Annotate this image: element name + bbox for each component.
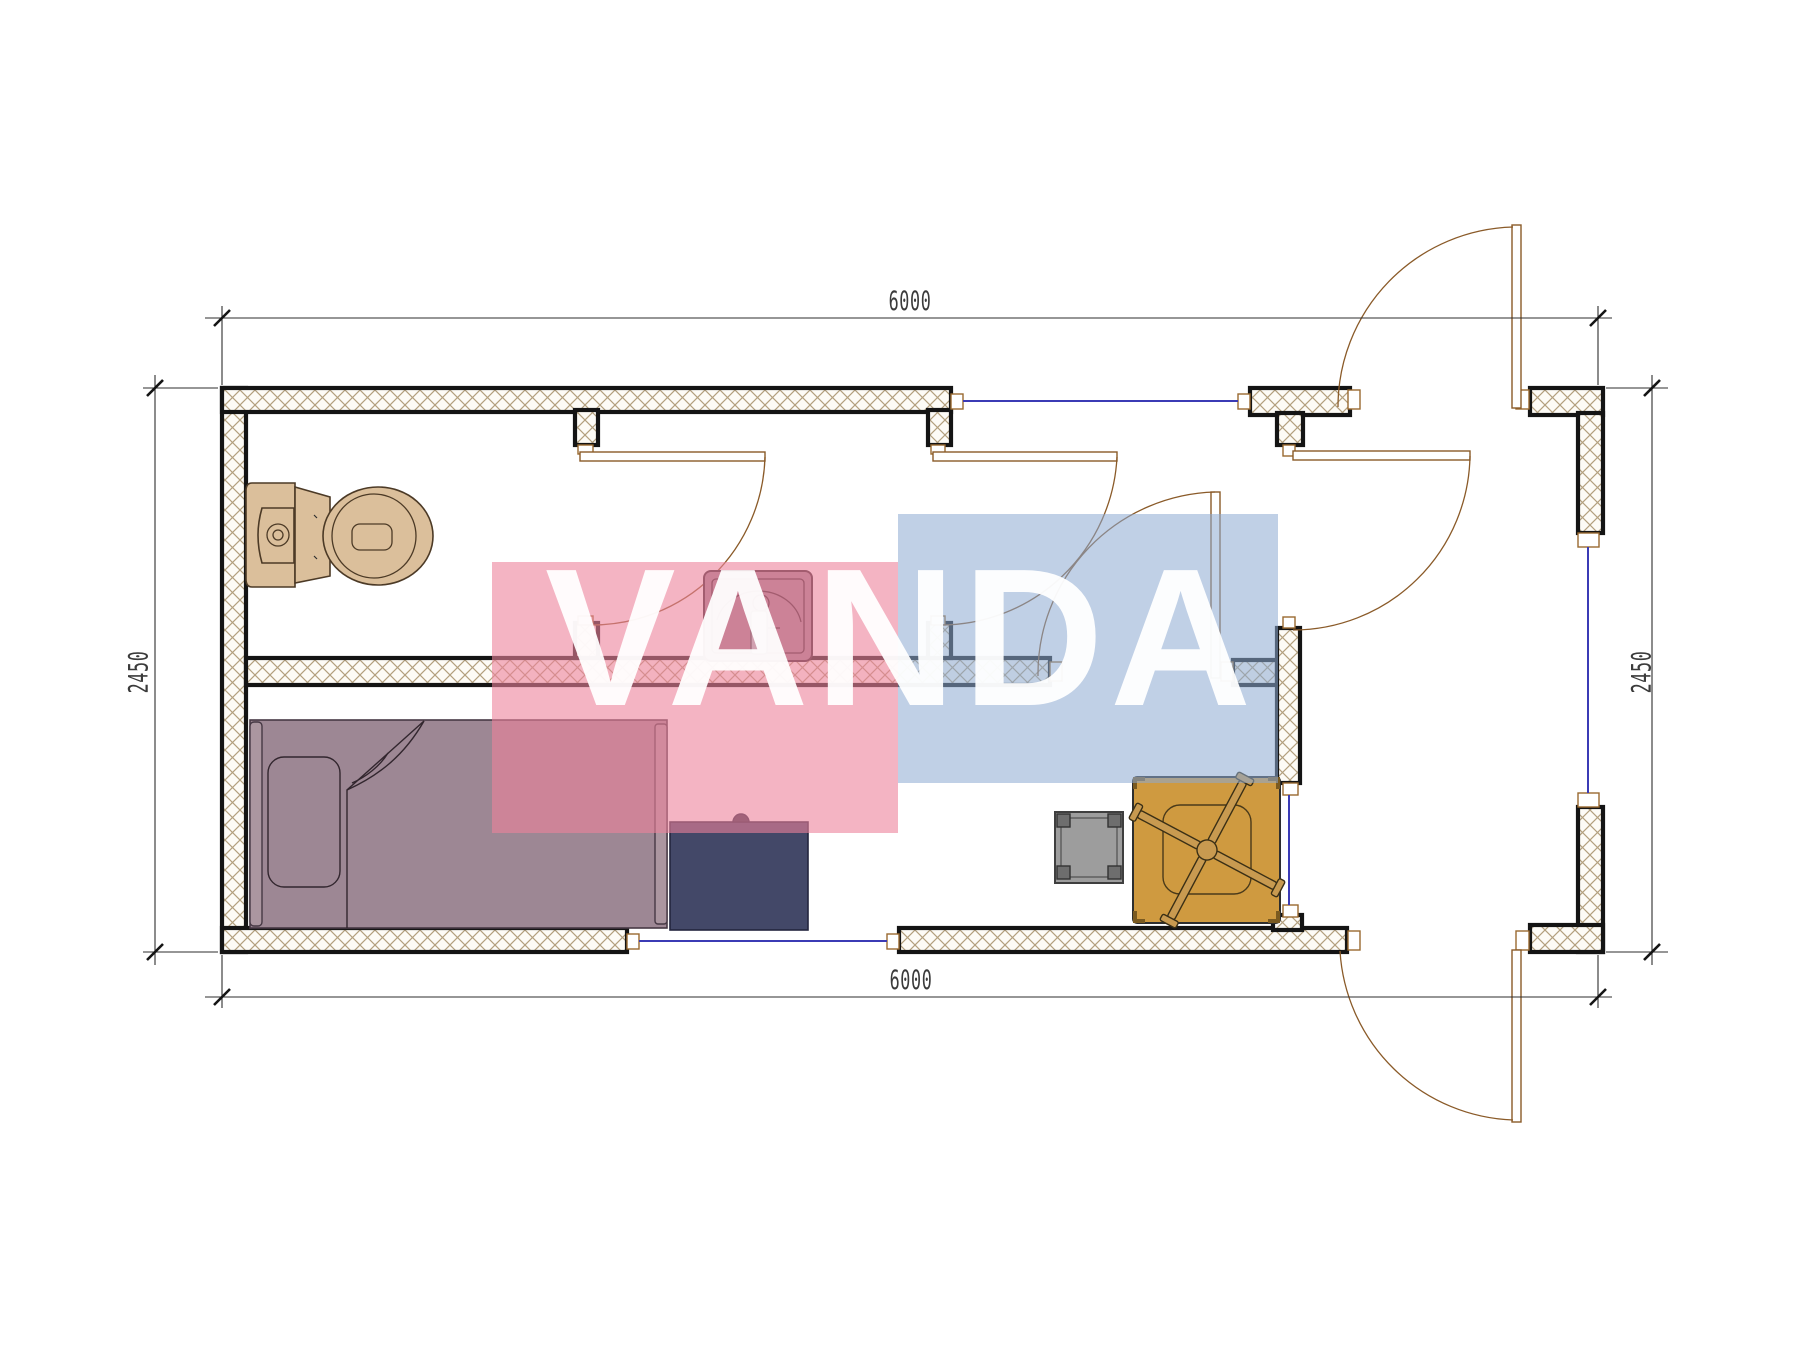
floor-plan-page: VANDA 6000 6000 2450 2450 [0, 0, 1800, 1350]
dimension-label-bottom: 6000 [890, 965, 933, 996]
wall-left [222, 388, 246, 952]
door-leaf-entry-top [1512, 225, 1521, 408]
door-leaf-entry-bottom [1512, 950, 1521, 1122]
wall-bottom-left [222, 928, 627, 952]
wall-right-upper [1578, 413, 1603, 533]
stool-symbol [1055, 812, 1123, 883]
door-leaf-wc [580, 452, 765, 461]
door-swing [1338, 227, 1513, 407]
toilet-symbol [246, 483, 433, 587]
dimension-label-top: 6000 [889, 286, 932, 317]
wall-bottom-right-corner [1530, 925, 1603, 952]
wall-partition-vertical [1277, 628, 1300, 783]
wall-stub [928, 410, 951, 445]
door-swing [1340, 951, 1513, 1120]
dimension-label-left: 2450 [124, 651, 155, 694]
watermark-text: VANDA [545, 540, 1257, 736]
dimension-label-right: 2450 [1627, 651, 1658, 694]
wall-stub [1277, 413, 1303, 445]
door-leaf-entry-inner [1293, 451, 1470, 460]
door-leaf-shower [933, 452, 1117, 461]
wall-stub [575, 410, 598, 445]
door-swing [1293, 456, 1470, 630]
